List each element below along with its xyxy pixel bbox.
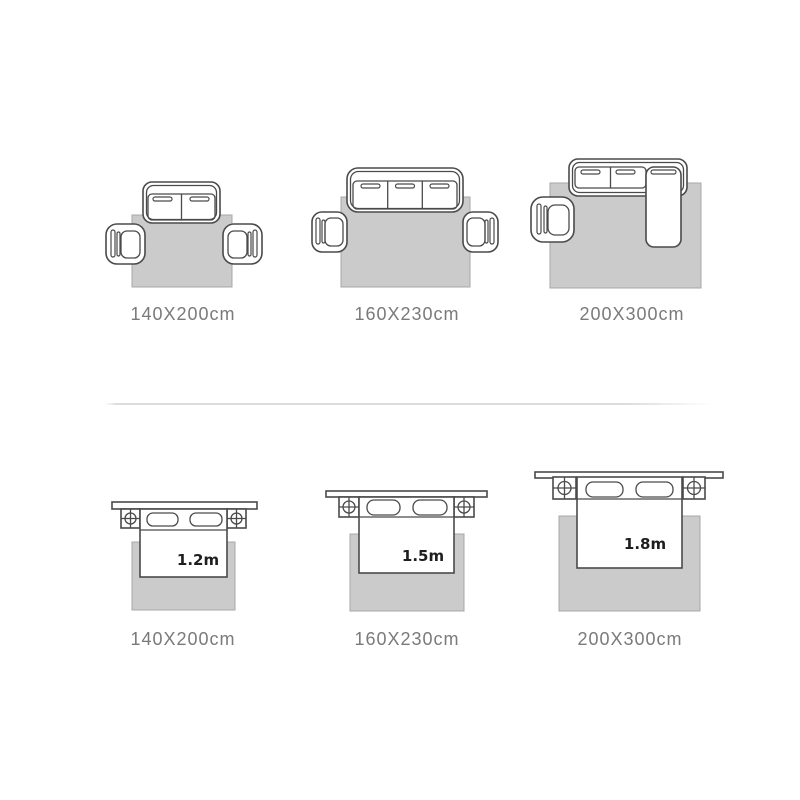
- sofa-rug-size-label-2: 160X230cm: [327, 304, 487, 325]
- bed-width-label: 1.5m: [402, 547, 444, 565]
- armchair-left-icon: [531, 197, 574, 242]
- divider-line: [105, 403, 712, 405]
- size-guide-image: 140X200cm 160X230cm: [0, 0, 800, 800]
- nightstand-left-icon: [339, 497, 359, 517]
- sofa-2seat-icon: [143, 182, 220, 223]
- sofa-3seat-icon: [347, 168, 463, 212]
- bed-panel-160x230: 1.5m: [320, 485, 494, 615]
- armchair-right-icon: [223, 224, 262, 264]
- sofa-rug-size-label-3: 200X300cm: [552, 304, 712, 325]
- rug-shape: [132, 215, 232, 287]
- headboard-shape: [326, 491, 487, 497]
- bed-rug-size-label-2: 160X230cm: [327, 629, 487, 650]
- armchair-left-icon: [106, 224, 145, 264]
- bed-icon: [577, 477, 682, 568]
- sofa-panel-140x200: [98, 174, 274, 300]
- bed-rug-size-label-1: 140X200cm: [103, 629, 263, 650]
- bed-width-label: 1.2m: [177, 551, 219, 569]
- nightstand-right-icon: [454, 497, 474, 517]
- nightstand-right-icon: [227, 509, 246, 528]
- bed-panel-200x300: 1.8m: [528, 466, 730, 615]
- sofa-panel-160x230: [303, 158, 507, 300]
- armchair-left-icon: [312, 212, 347, 252]
- sofa-rug-size-label-1: 140X200cm: [103, 304, 263, 325]
- bed-rug-size-label-3: 200X300cm: [550, 629, 710, 650]
- nightstand-right-icon: [683, 477, 705, 499]
- bed-width-label: 1.8m: [624, 535, 666, 553]
- nightstand-left-icon: [553, 477, 576, 499]
- armchair-right-icon: [463, 212, 498, 252]
- nightstand-left-icon: [121, 509, 140, 528]
- sofa-panel-200x300: [523, 150, 707, 300]
- headboard-shape: [112, 502, 257, 509]
- bed-panel-140x200: 1.2m: [106, 496, 264, 615]
